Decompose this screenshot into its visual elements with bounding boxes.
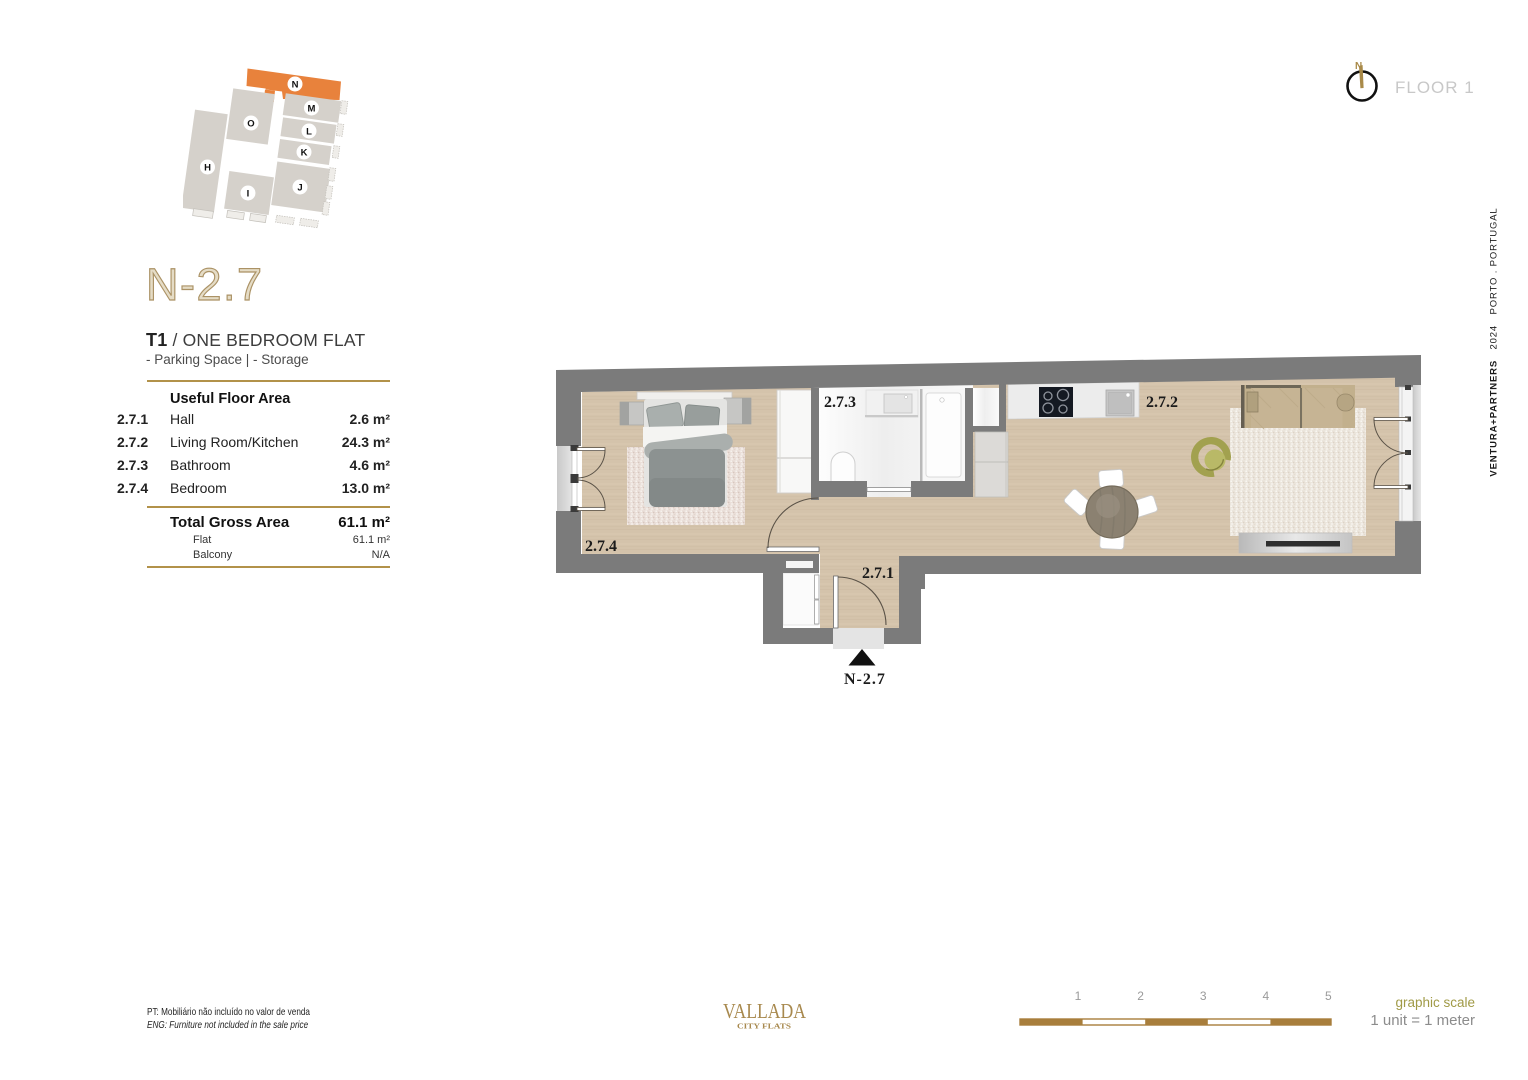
svg-text:2.7.1: 2.7.1 — [862, 565, 894, 582]
svg-text:VALLADA: VALLADA — [723, 999, 806, 1023]
svg-text:H: H — [204, 163, 211, 174]
svg-text:M: M — [308, 104, 316, 115]
svg-text:2.7.2: 2.7.2 — [1146, 394, 1178, 411]
svg-text:O: O — [247, 119, 254, 130]
svg-text:2: 2 — [1137, 989, 1144, 1003]
svg-text:N-2.7: N-2.7 — [844, 671, 886, 688]
svg-text:I: I — [247, 189, 250, 200]
svg-text:CITY FLATS: CITY FLATS — [737, 1022, 791, 1031]
svg-text:K: K — [301, 148, 308, 159]
svg-text:2.7.3: 2.7.3 — [824, 394, 856, 411]
svg-text:J: J — [297, 183, 302, 194]
svg-text:N: N — [1355, 61, 1362, 72]
svg-text:1: 1 — [1075, 989, 1082, 1003]
svg-text:5: 5 — [1325, 989, 1332, 1003]
svg-text:2.7.4: 2.7.4 — [585, 538, 617, 555]
svg-text:L: L — [306, 127, 312, 138]
svg-text:4: 4 — [1262, 989, 1269, 1003]
svg-text:3: 3 — [1200, 989, 1207, 1003]
svg-text:N: N — [292, 80, 299, 91]
